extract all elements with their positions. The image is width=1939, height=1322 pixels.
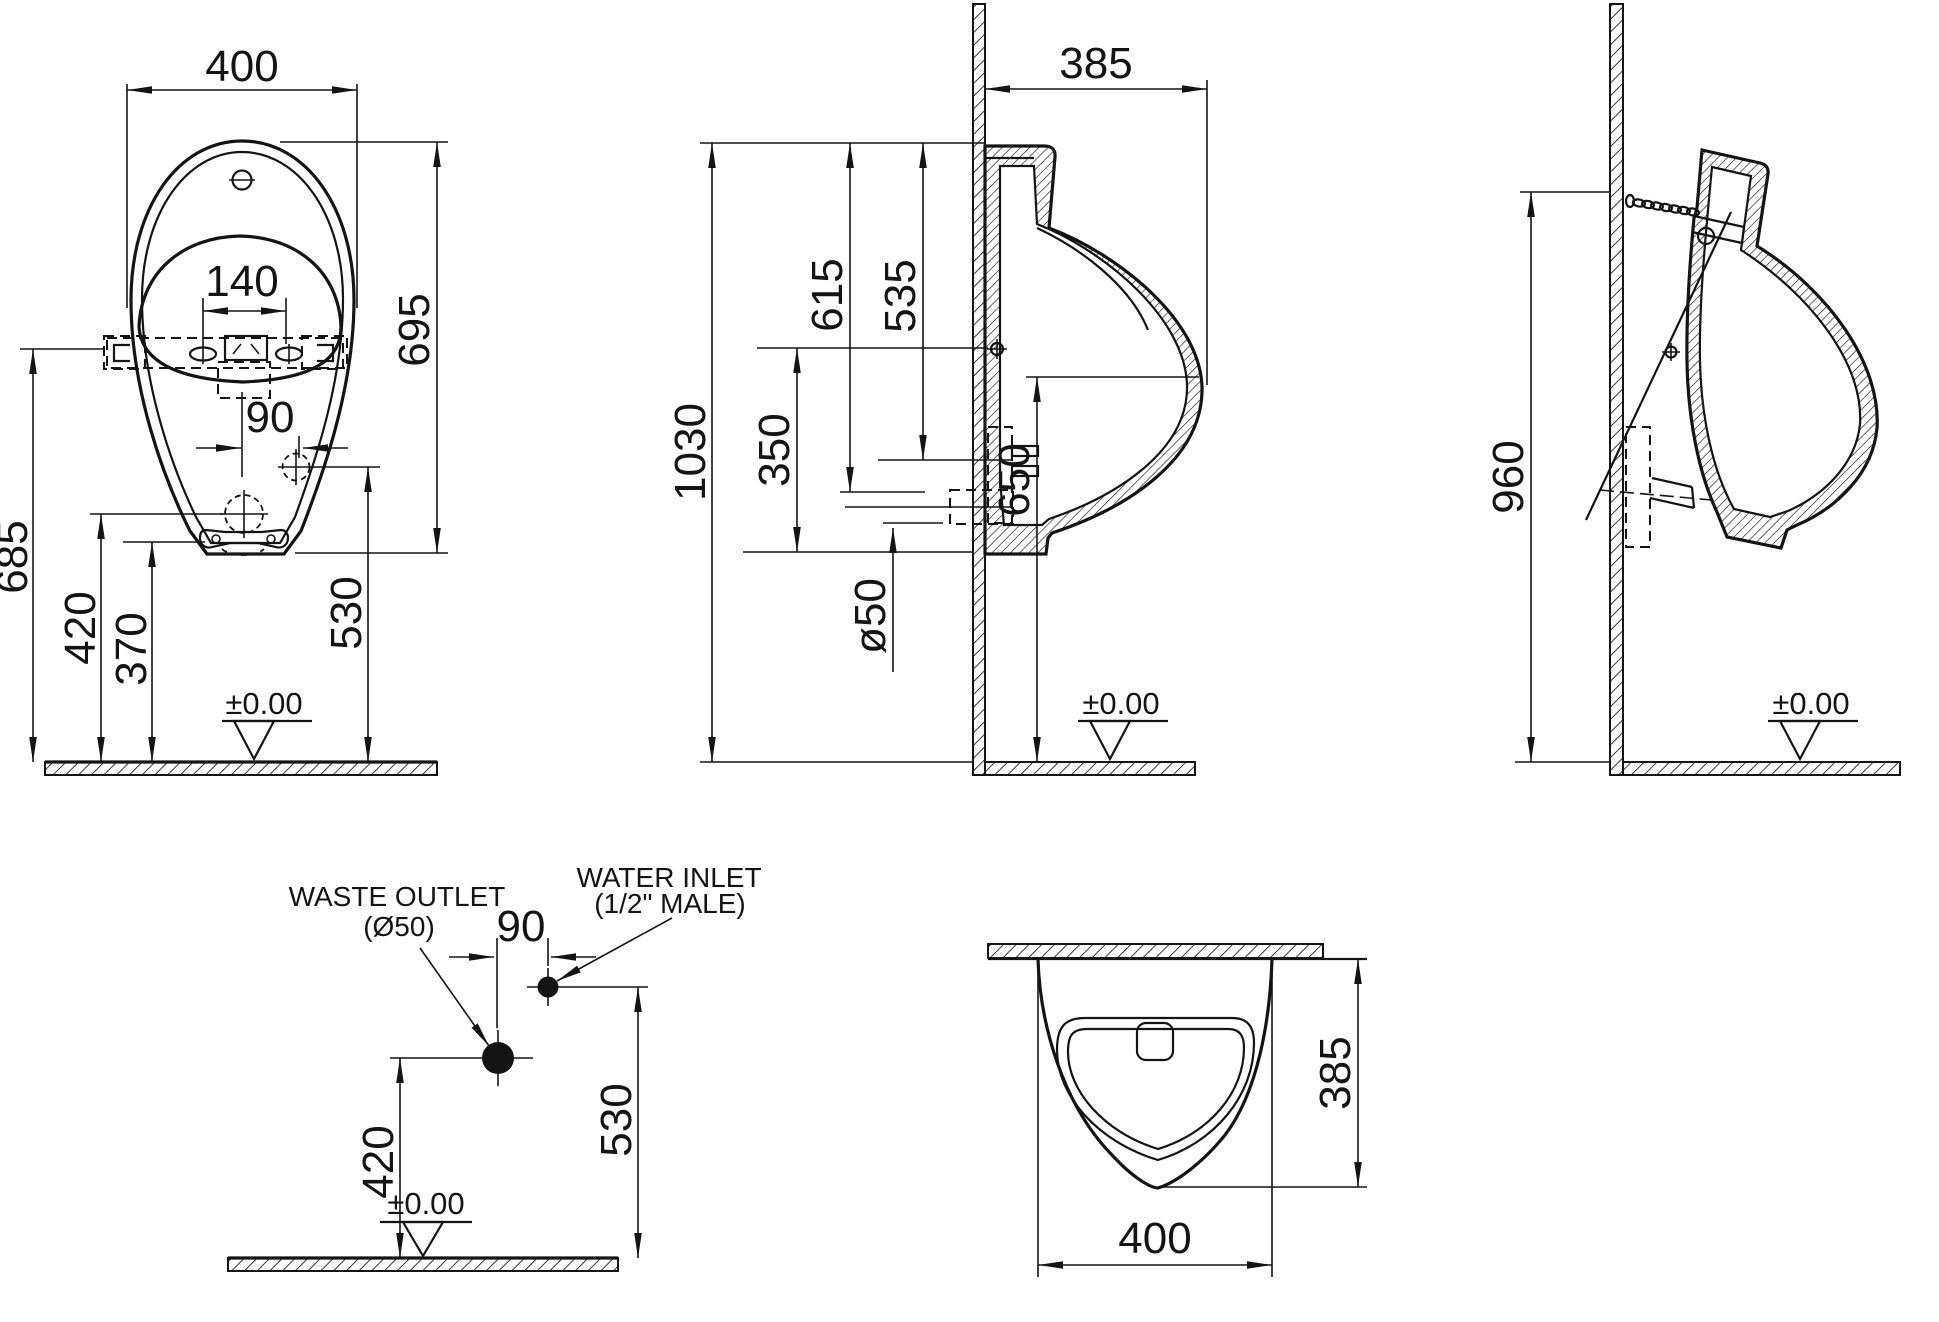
connection-layout-view: WASTE OUTLET (Ø50) WATER INLET (1/2" MAL… <box>228 862 762 1271</box>
dimensional-drawing-sheet: 400 140 90 695 685 420 370 530 ±0.00 <box>0 0 1939 1322</box>
dim-side-depth: 385 <box>1059 39 1132 88</box>
floor-hatch <box>985 762 1195 775</box>
dim-conn-inlet-h: 530 <box>592 1083 641 1156</box>
datum-triangle <box>234 721 274 759</box>
technical-drawing-canvas: 400 140 90 695 685 420 370 530 ±0.00 <box>0 0 1939 1322</box>
datum-label: ±0.00 <box>1772 686 1849 721</box>
dim-side-535: 535 <box>876 259 925 332</box>
dim-front-width: 400 <box>205 42 278 91</box>
hanger-clip-right <box>317 345 333 361</box>
wall-hatch <box>973 4 985 775</box>
wall-hatch <box>1610 4 1623 775</box>
rim-outer-line <box>1057 1018 1254 1160</box>
side-section-view: 385 1030 615 535 350 ø50 650 ±0.00 <box>666 4 1207 775</box>
plate-hole-left <box>212 535 220 543</box>
wall-hatch <box>988 944 1323 958</box>
outlet-spigot <box>1650 478 1694 508</box>
dim-front-outlet-h: 420 <box>56 591 105 664</box>
dim-side-615: 615 <box>803 258 852 331</box>
datum-label: ±0.00 <box>225 686 302 721</box>
water-inlet-size-label: (1/2" MALE) <box>594 888 746 919</box>
dim-side-350: 350 <box>750 413 799 486</box>
bowl-cavity-tilted <box>1700 167 1860 517</box>
hanger-end-plate-left <box>104 336 145 369</box>
dim-front-spreader: 140 <box>205 257 278 306</box>
datum-triangle <box>1090 721 1130 759</box>
dim-side-dia50: ø50 <box>846 578 895 654</box>
chain-hung-view: 960 ±0.00 <box>1484 4 1900 775</box>
urinal-body-inner-line <box>142 152 343 543</box>
datum-triangle <box>1780 721 1820 759</box>
plate-hole-right <box>267 535 275 543</box>
datum-label: ±0.00 <box>387 1186 464 1221</box>
dim-conn-offset: 90 <box>497 902 546 951</box>
dim-front-offset: 90 <box>246 393 295 442</box>
waste-outlet-label: WASTE OUTLET <box>289 881 506 912</box>
inwall-pipe-dashed <box>1626 427 1650 547</box>
water-inlet-point <box>538 977 559 998</box>
chain <box>1632 199 1699 217</box>
waste-outlet-point <box>482 1042 514 1074</box>
floor-hatch <box>45 762 437 775</box>
dim-front-inlet-h: 530 <box>322 576 371 649</box>
inlet-leader-arrow <box>557 918 672 981</box>
dim-side-rim-h: 650 <box>990 443 1039 516</box>
dim-plan-width: 400 <box>1118 1214 1191 1263</box>
rim-inner-line <box>1068 1029 1244 1149</box>
dim-chain-anchor-h: 960 <box>1484 440 1533 513</box>
waste-outlet-size-label: (Ø50) <box>363 911 435 942</box>
plan-view: 385 400 <box>988 944 1367 1277</box>
waste-outlet-cross <box>220 490 268 538</box>
center-bracket <box>225 336 267 360</box>
floor-hatch <box>1623 762 1900 775</box>
urinal-plan-outline <box>1038 959 1272 1188</box>
dim-side-total-h: 1030 <box>666 403 715 501</box>
front-view: 400 140 90 695 685 420 370 530 ±0.00 <box>0 42 448 775</box>
dim-front-bracket-h: 370 <box>107 612 156 685</box>
waste-leader-arrow <box>420 948 489 1046</box>
datum-label: ±0.00 <box>1082 686 1159 721</box>
dim-front-height: 695 <box>390 293 439 366</box>
center-bracket-marks <box>233 344 259 354</box>
floor-hatch <box>228 1258 618 1271</box>
dim-plan-depth: 385 <box>1311 1036 1360 1109</box>
hanger-clip-left <box>114 345 130 361</box>
datum-triangle <box>403 1222 443 1256</box>
dim-front-hanger-h: 685 <box>0 520 37 593</box>
